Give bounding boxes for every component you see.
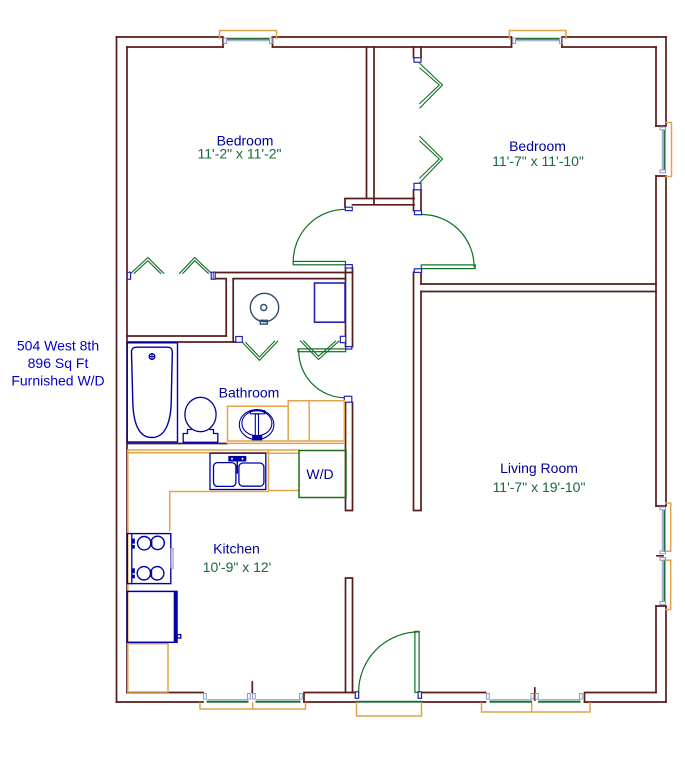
- svg-text:504 West 8th: 504 West 8th: [17, 338, 99, 354]
- svg-text:11'-7" x 19'-10": 11'-7" x 19'-10": [493, 479, 586, 495]
- svg-text:896 Sq Ft: 896 Sq Ft: [28, 355, 89, 371]
- svg-text:Living Room: Living Room: [500, 460, 578, 476]
- svg-text:11'-2" x 11'-2": 11'-2" x 11'-2": [197, 146, 281, 162]
- svg-text:Bathroom: Bathroom: [219, 385, 280, 401]
- svg-text:W/D: W/D: [306, 466, 333, 482]
- svg-text:Kitchen: Kitchen: [213, 541, 260, 557]
- svg-text:10'-9" x 12': 10'-9" x 12': [203, 559, 272, 575]
- svg-text:11'-7" x 11'-10": 11'-7" x 11'-10": [492, 153, 584, 169]
- svg-text:Bedroom: Bedroom: [509, 138, 566, 154]
- svg-text:Furnished W/D: Furnished W/D: [11, 373, 104, 389]
